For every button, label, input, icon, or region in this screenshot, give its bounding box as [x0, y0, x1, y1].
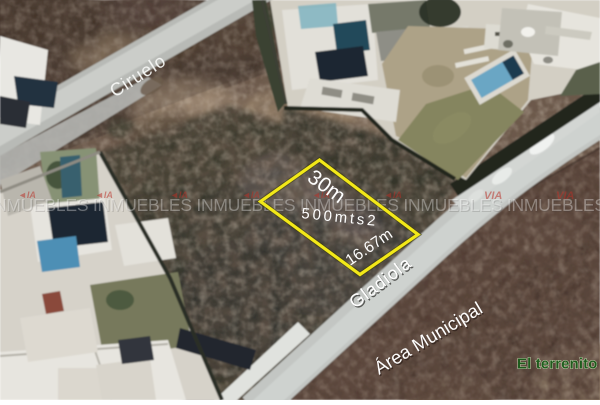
svg-text:◄IA: ◄IA — [170, 190, 188, 200]
svg-text:◄IA: ◄IA — [18, 190, 36, 200]
svg-text:NMUEBLES INMUEBLES INMUEBLES I: NMUEBLES INMUEBLES INMUEBLES INMUEBLES I… — [0, 195, 600, 215]
svg-text:El terrenito: El terrenito — [517, 357, 598, 373]
svg-text:VIA: VIA — [484, 190, 502, 202]
svg-text:◄IA: ◄IA — [95, 190, 113, 200]
svg-text:◄IA: ◄IA — [242, 190, 260, 200]
svg-text:◄IA: ◄IA — [384, 190, 402, 200]
svg-text:VIA: VIA — [556, 190, 574, 202]
